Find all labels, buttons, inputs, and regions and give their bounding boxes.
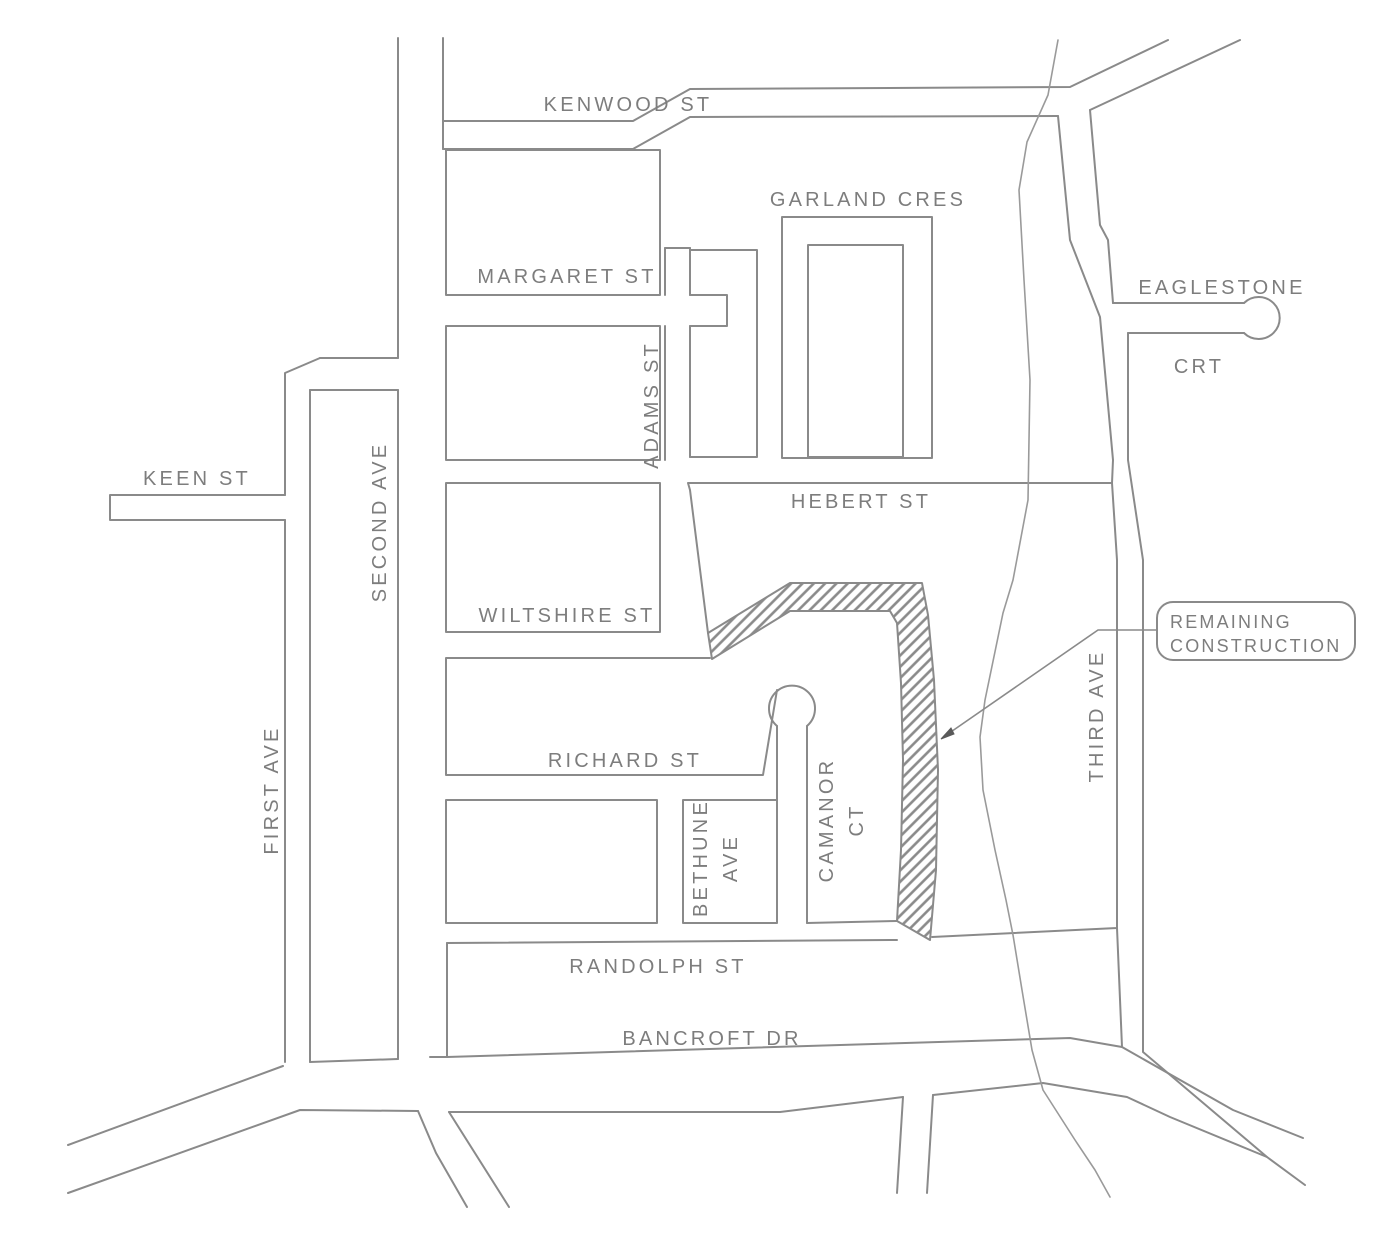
road-third-ave-east-edge-lower (1128, 333, 1305, 1185)
road-south-stub-road (897, 1095, 933, 1193)
street-label-second-ave: SECOND AVE (369, 442, 391, 603)
road-randolph-corridor-north-edge (447, 940, 897, 943)
street-label-margaret-st: MARGARET ST (477, 266, 656, 288)
road-branch-road-southeast (418, 1111, 509, 1207)
road-camanor-ct-cul-de-sac (769, 686, 815, 726)
road-first-ave-west-edge (285, 358, 320, 1062)
street-label-third-ave: THIRD AVE (1086, 650, 1108, 783)
road-block-southwest (446, 800, 657, 923)
road-keen-st-outline (110, 495, 285, 520)
road-bottom-road-north-edge (68, 1057, 447, 1145)
street-label-hebert-st: HEBERT ST (791, 491, 931, 513)
street-label-crt: CRT (1174, 356, 1224, 378)
street-labels: KENWOOD STGARLAND CRESMARGARET STEAGLEST… (143, 94, 1306, 1050)
street-label-bethune-ave: BETHUNE (690, 799, 712, 917)
road-garland-cres-outer (782, 217, 932, 458)
street-label-camanor-ct: CAMANOR (816, 758, 838, 883)
road-third-ave-east-edge-upper (1090, 110, 1113, 303)
road-camanor-strip-south-edge (807, 921, 897, 923)
callout-arrowhead-icon (941, 728, 954, 739)
road-bottom-road-south-edge (68, 1083, 1267, 1193)
street-label-randolph-st: RANDOLPH ST (569, 956, 746, 978)
street-label-richard-st: RICHARD ST (548, 750, 702, 772)
remaining-construction-callout: REMAININGCONSTRUCTION (941, 602, 1355, 739)
road-block-northeast-of-adams (690, 250, 757, 457)
callout-leader-line (945, 630, 1157, 736)
creek-line (980, 40, 1110, 1197)
street-label-eaglestone: EAGLESTONE (1138, 277, 1305, 299)
road-third-ave-west-edge-upper (1058, 116, 1113, 483)
callout-text-line-2: CONSTRUCTION (1170, 636, 1341, 656)
street-label-adams-st: ADAMS ST (641, 341, 663, 469)
map-canvas: KENWOOD STGARLAND CRESMARGARET STEAGLEST… (0, 0, 1400, 1243)
creek (980, 40, 1110, 1197)
street-label-bancroft-dr: BANCROFT DR (622, 1028, 801, 1050)
street-label-garland-cres: GARLAND CRES (770, 189, 966, 211)
road-eaglestone-crt-cul-de-sac (1244, 297, 1280, 339)
road-third-ave-west-edge-lower (1117, 928, 1303, 1138)
road-block-adams (446, 326, 660, 460)
street-label-first-ave: FIRST AVE (261, 725, 283, 854)
street-label-keen-st: KEEN ST (143, 468, 251, 490)
callout-text-line-1: REMAINING (1170, 612, 1292, 632)
street-label-camanor-ct: CT (846, 803, 868, 836)
road-margaret-st-east-stub (690, 295, 727, 326)
road-northeast-road-east-edge (1090, 40, 1240, 110)
construction-area-map: KENWOOD STGARLAND CRESMARGARET STEAGLEST… (0, 0, 1400, 1243)
road-garland-cres-inner-island (808, 245, 903, 457)
street-label-bethune-ave: AVE (720, 834, 742, 882)
street-label-wiltshire-st: WILTSHIRE ST (479, 605, 656, 627)
street-label-kenwood-st: KENWOOD ST (544, 94, 713, 116)
